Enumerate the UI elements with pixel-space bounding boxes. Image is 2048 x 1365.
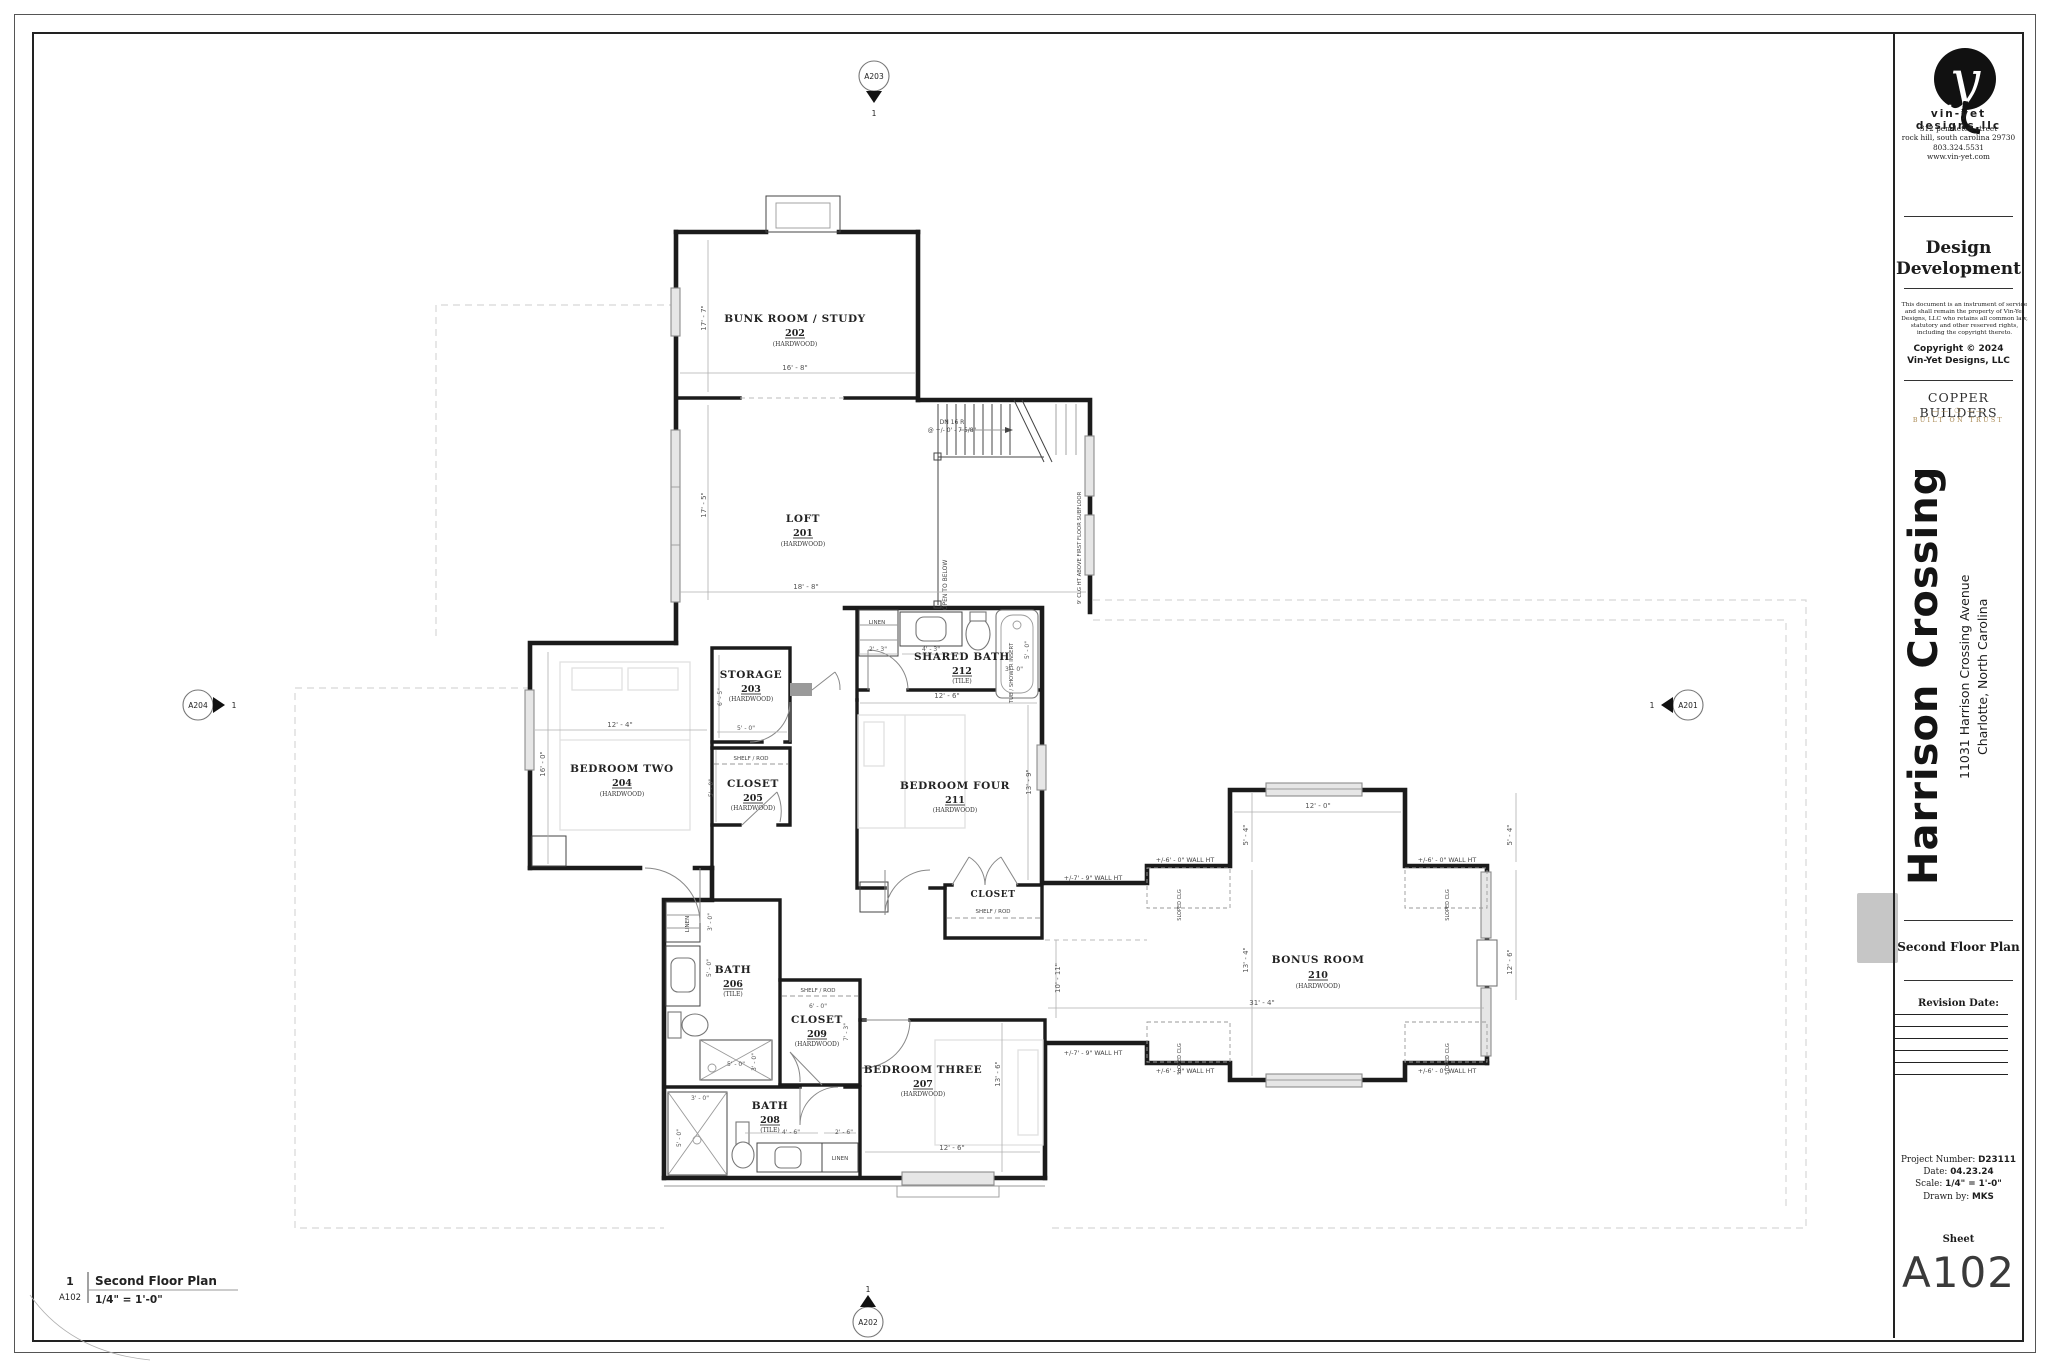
room-finish: (HARDWOOD) (901, 1091, 945, 1098)
room-finish: (TILE) (952, 678, 971, 685)
viewport-sheet: A102 (59, 1293, 81, 1303)
dim: 5' - 4" (1242, 824, 1250, 845)
builder-logo: COPPER BUILDERS (1895, 390, 2022, 420)
dim: 2' - 6" (835, 1129, 853, 1136)
wall-height-note: +/-6' - 0" WALL HT (1418, 857, 1477, 864)
divider (1904, 980, 2013, 981)
room-finish: (HARDWOOD) (731, 805, 775, 812)
revision-row (1895, 1027, 2008, 1039)
marker-num: 1 (872, 109, 877, 118)
linen-label: LINEN (869, 620, 885, 626)
viewport-title-text: Second Floor Plan (95, 1274, 217, 1288)
project-number-label: Project Number: (1901, 1155, 1975, 1165)
room-name: BONUS ROOM (1272, 954, 1365, 966)
wall-height-note: +/-7' - 9" WALL HT (1064, 1050, 1123, 1057)
scale-label: Scale: (1915, 1179, 1942, 1189)
viewport-scale: 1/4" = 1'-0" (95, 1294, 163, 1306)
room-name: BATH (715, 964, 752, 976)
project-title: Harrison Crossing (1901, 440, 1947, 910)
linen-label: LINEN (685, 916, 691, 932)
shelf-rod-label: SHELF / ROD (975, 909, 1010, 915)
stair-note-2: @ +/- 0' - 7 5/8" (928, 427, 977, 434)
stair-note: DN 16 R (940, 419, 965, 426)
dim: 5' - 4" (1506, 824, 1514, 845)
project-info: Project Number: D23111 Date: 04.23.24 Sc… (1895, 1154, 2022, 1203)
marker-id: A204 (188, 701, 208, 710)
revision-row (1895, 1039, 2008, 1051)
door-swings (645, 650, 1018, 1125)
room-number: 205 (743, 793, 763, 804)
dim: 5' - 0" (737, 725, 755, 732)
firm-address-2: rock hill, south carolina 29730 (1895, 133, 2022, 142)
divider (1904, 288, 2013, 289)
room-finish: (HARDWOOD) (773, 341, 817, 348)
marker-num: 1 (232, 701, 237, 710)
dim: 31' - 4" (1249, 999, 1274, 1007)
firm-phone: 803.324.5531 (1895, 143, 2022, 152)
sloped-clg-label: SLOPED CLG (1445, 889, 1451, 921)
dim: 17' - 7" (700, 305, 708, 330)
dim: 5' - 0" (708, 779, 715, 797)
dim: 6' - 5" (717, 688, 724, 706)
tub-shower-label: TUB / SHOWER INSERT (1009, 642, 1015, 704)
date-label: Date: (1923, 1167, 1947, 1177)
marker-num: 1 (866, 1285, 871, 1294)
marker-id: A203 (864, 72, 884, 81)
wall-height-note: +/-6' - 0" WALL HT (1156, 857, 1215, 864)
dim: 16' - 8" (782, 364, 807, 372)
room-number: 211 (945, 795, 965, 806)
scale-line: Scale: 1/4" = 1'-0" (1895, 1178, 2022, 1190)
dim: 12' - 0" (1305, 802, 1330, 810)
room-finish: (HARDWOOD) (933, 807, 977, 814)
room-finish: (HARDWOOD) (600, 791, 644, 798)
drawn-by-value: MKS (1972, 1192, 1994, 1202)
firm-address: 312 pendleton street rock hill, south ca… (1895, 124, 2022, 161)
scale-value: 1/4" = 1'-0" (1945, 1179, 2002, 1189)
title-block: y vin-yet designs,llc 312 pendleton stre… (1893, 32, 2022, 1338)
phase-line1: Design (1895, 238, 2022, 259)
dim: 12' - 4" (607, 721, 632, 729)
room-number: 206 (723, 979, 743, 990)
room-number: 210 (1308, 970, 1328, 981)
divider (1904, 380, 2013, 381)
marker-num: 1 (1650, 701, 1655, 710)
dim: 4' - 6" (782, 1129, 800, 1136)
firm-web: www.vin-yet.com (1895, 152, 2022, 161)
dim: 10' - 11" (1054, 963, 1062, 993)
dim: 3' - 0" (751, 1053, 758, 1071)
dim: 18' - 8" (793, 583, 818, 591)
dim: 5' - 0" (676, 1129, 683, 1147)
viewport-number: 1 (66, 1275, 74, 1288)
room-finish: (HARDWOOD) (729, 696, 773, 703)
date-value: 04.23.24 (1950, 1167, 1993, 1177)
sheet-number: A102 (1895, 1248, 2022, 1297)
dim: 6' - 0" (809, 1003, 827, 1010)
divider (1904, 216, 2013, 217)
room-number: 207 (913, 1079, 933, 1090)
room-name: CLOSET (971, 890, 1016, 900)
builder-tagline: BUILT ON TRUST (1895, 417, 2022, 424)
room-name: BEDROOM THREE (864, 1064, 983, 1076)
room-name: STORAGE (720, 669, 783, 681)
sloped-clg-label: SLOPED CLG (1177, 889, 1183, 921)
room-finish: (HARDWOOD) (1296, 983, 1340, 990)
phase-label: Design Development (1895, 238, 2022, 280)
project-number-line: Project Number: D23111 (1895, 1154, 2022, 1166)
room-number: 204 (612, 778, 632, 789)
copyright-year: Copyright © 2024 (1895, 344, 2022, 356)
dim: 5' - 0" (1024, 641, 1031, 659)
dim: 3' - 0" (691, 1095, 709, 1102)
dim: 16' - 0" (539, 751, 547, 776)
roof-outline-below (295, 305, 1806, 1228)
dim: 5' - 0" (706, 959, 713, 977)
dim: 5' - 0" (727, 1061, 745, 1068)
room-number: 209 (807, 1029, 827, 1040)
revision-row (1895, 1051, 2008, 1063)
marker-id: A201 (1678, 701, 1698, 710)
drawing-sheet: y vin-yet designs,llc 312 pendleton stre… (0, 0, 2048, 1365)
dim: 2' - 3" (869, 646, 887, 653)
divider (1904, 920, 2013, 921)
dim: 13' - 9" (1025, 769, 1033, 794)
room-name: BUNK ROOM / STUDY (724, 313, 866, 325)
wall-height-note: +/-7' - 9" WALL HT (1064, 875, 1123, 882)
dim: 12' - 6" (939, 1144, 964, 1152)
shelf-rod-label: SHELF / ROD (800, 988, 835, 994)
room-name: CLOSET (727, 778, 779, 790)
dim: 3' - 0" (1005, 666, 1023, 673)
room-number: 208 (760, 1115, 780, 1126)
dim: 13' - 4" (1242, 947, 1250, 972)
room-name: BEDROOM TWO (570, 763, 674, 775)
project-address-2: Charlotte, North Carolina (1975, 462, 1990, 892)
windows (525, 288, 1497, 1197)
room-finish: (TILE) (760, 1127, 779, 1134)
room-name: BEDROOM FOUR (900, 780, 1010, 792)
revision-date-label: Revision Date: (1895, 998, 2022, 1009)
room-name: CLOSET (791, 1014, 843, 1026)
floor-plan: BUNK ROOM / STUDY 202 (HARDWOOD) LOFT 20… (0, 0, 1893, 1365)
date-line: Date: 04.23.24 (1895, 1166, 2022, 1178)
room-name: BATH (752, 1100, 789, 1112)
wall-height-note: +/-6' - 0" WALL HT (1156, 1068, 1215, 1075)
room-finish: (HARDWOOD) (795, 1041, 839, 1048)
linen-label: LINEN (832, 1156, 848, 1162)
room-finish: (TILE) (723, 991, 742, 998)
dim: 3' - 0" (707, 913, 714, 931)
room-number: 203 (741, 684, 761, 695)
copyright-line: Copyright © 2024 Vin-Yet Designs, LLC (1895, 344, 2022, 367)
revision-table (1895, 1014, 2008, 1075)
revision-row (1895, 1063, 2008, 1075)
project-address-1: 11031 Harrison Crossing Avenue (1957, 462, 1972, 892)
phase-line2: Development (1895, 259, 2022, 280)
sheet-title: Second Floor Plan (1895, 940, 2022, 954)
drawn-by-line: Drawn by: MKS (1895, 1191, 2022, 1203)
wall-height-note: +/-6' - 0" WALL HT (1418, 1068, 1477, 1075)
builder-motif-icon: —— ❍ —— (1895, 407, 2022, 415)
room-finish: (HARDWOOD) (781, 541, 825, 548)
dimension-lines (535, 240, 1516, 1172)
sheet-label: Sheet (1895, 1234, 2022, 1245)
dim: 12' - 6" (1506, 949, 1514, 974)
dim: 4' - 3" (922, 646, 940, 653)
room-name: LOFT (786, 513, 820, 525)
project-number-value: D23111 (1978, 1155, 2016, 1165)
open-to-below-note: OPEN TO BELOW (942, 560, 949, 611)
dim: 13' - 6" (994, 1061, 1002, 1086)
viewport-title: 1 A102 Second Floor Plan 1/4" = 1'-0" (30, 1272, 238, 1360)
copyright-owner: Vin-Yet Designs, LLC (1895, 356, 2022, 368)
copyright-disclaimer: This document is an instrument of servic… (1895, 302, 2034, 337)
room-number: 212 (952, 666, 972, 677)
room-number: 201 (793, 528, 813, 539)
dim: 12' - 6" (934, 692, 959, 700)
drawn-by-label: Drawn by: (1923, 1192, 1969, 1202)
dim: 7' - 3" (843, 1023, 850, 1041)
shelf-rod-label: SHELF / ROD (733, 756, 768, 762)
dim: 17' - 5" (700, 492, 708, 517)
marker-id: A202 (858, 1318, 878, 1327)
revision-row (1895, 1015, 2008, 1027)
room-number: 202 (785, 328, 805, 339)
room-labels: BUNK ROOM / STUDY 202 (HARDWOOD) LOFT 20… (570, 313, 1364, 1134)
ceiling-height-note: 9' CLG HT ABOVE FIRST FLOOR SUBFLOOR (1077, 491, 1083, 604)
firm-address-1: 312 pendleton street (1895, 124, 2022, 133)
